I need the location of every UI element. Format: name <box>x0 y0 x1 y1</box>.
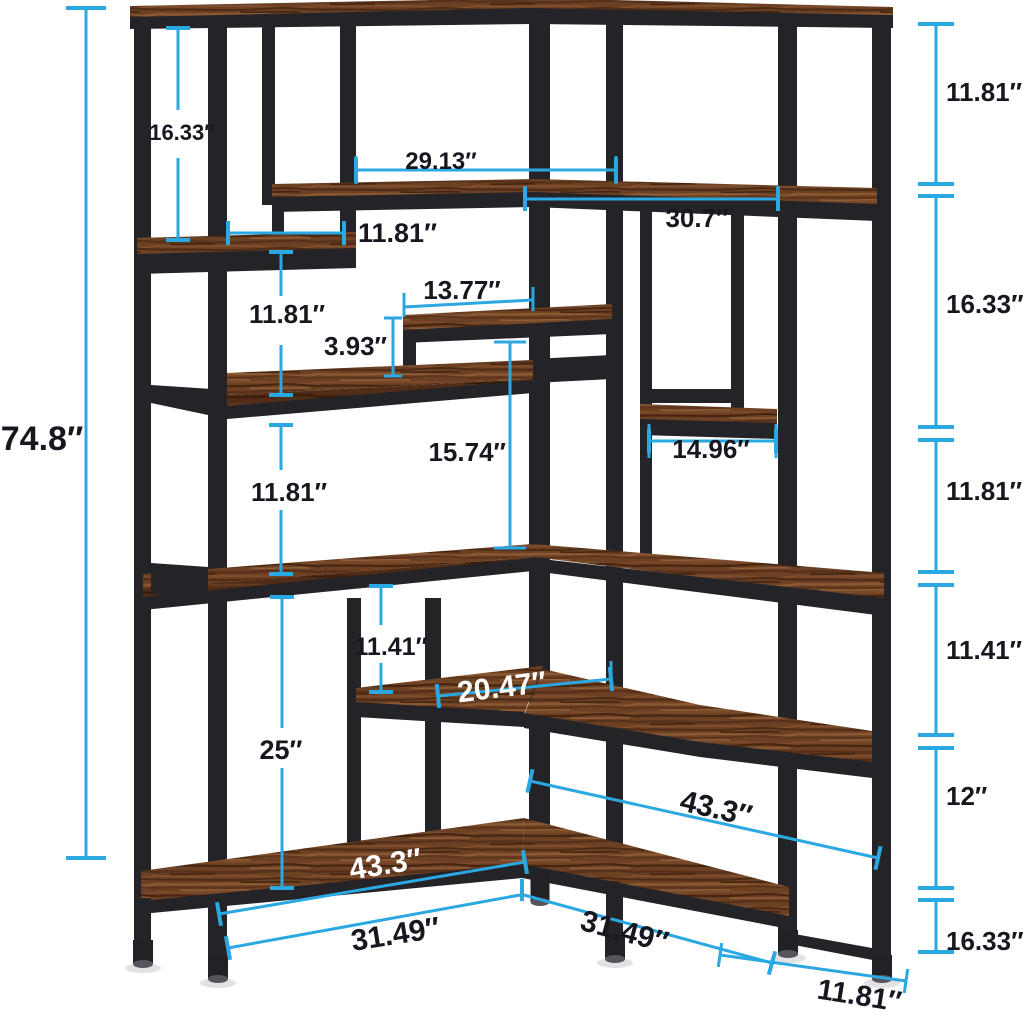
svg-text:14.96″: 14.96″ <box>672 434 750 464</box>
svg-text:30.7″: 30.7″ <box>665 203 728 233</box>
svg-text:11.41″: 11.41″ <box>946 635 1022 665</box>
svg-text:16.33″: 16.33″ <box>149 120 215 145</box>
svg-text:11.81″: 11.81″ <box>249 299 325 329</box>
svg-text:74.8″: 74.8″ <box>1 420 83 458</box>
svg-text:11.81″: 11.81″ <box>251 477 327 507</box>
svg-text:11.81″: 11.81″ <box>946 476 1022 506</box>
svg-text:15.74″: 15.74″ <box>428 437 506 467</box>
svg-text:12″: 12″ <box>946 781 987 811</box>
svg-text:13.77″: 13.77″ <box>423 275 501 305</box>
svg-text:16.33″: 16.33″ <box>946 289 1024 319</box>
svg-text:16.33″: 16.33″ <box>946 926 1024 956</box>
svg-text:3.93″: 3.93″ <box>324 331 387 361</box>
svg-text:29.13″: 29.13″ <box>405 148 477 175</box>
svg-text:11.81″: 11.81″ <box>358 218 437 248</box>
svg-text:11.41″: 11.41″ <box>354 633 427 661</box>
svg-text:11.81″: 11.81″ <box>946 77 1022 107</box>
svg-text:25″: 25″ <box>260 735 303 765</box>
